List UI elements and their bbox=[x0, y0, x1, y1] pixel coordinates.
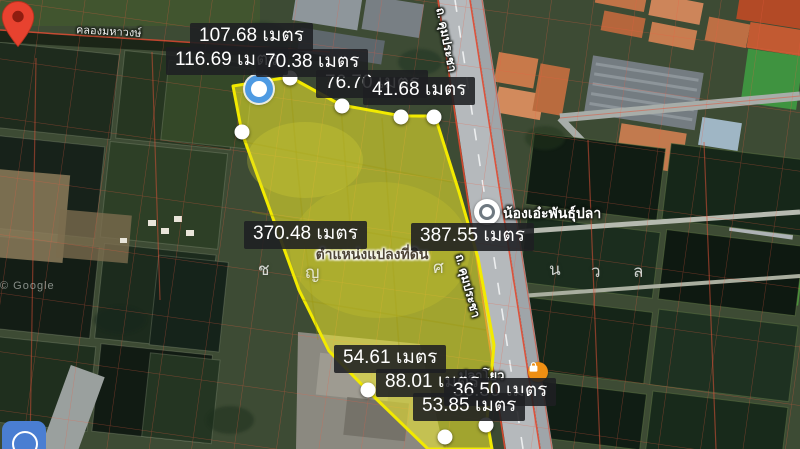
vertex-marker[interactable] bbox=[335, 99, 350, 114]
map-control-button[interactable] bbox=[2, 421, 46, 449]
area-letter: ช bbox=[258, 256, 270, 283]
vertex-marker[interactable] bbox=[438, 430, 453, 445]
vertex-marker[interactable] bbox=[427, 110, 442, 125]
shopping-bag-icon bbox=[528, 362, 539, 373]
area-letter: ล bbox=[633, 258, 643, 285]
vertex-marker[interactable] bbox=[361, 383, 376, 398]
measurement-label: 70.38 เมตร bbox=[256, 49, 368, 77]
map-canvas[interactable]: ช ญ ศ น ว ล คลองมหาวงษ์ ถ. คุมประชา ถ. ค… bbox=[0, 0, 800, 449]
location-pin[interactable] bbox=[0, 0, 36, 48]
measurement-label: 41.68 เมตร bbox=[363, 77, 475, 105]
measurement-label: 53.85 เมตร bbox=[413, 393, 525, 421]
google-watermark: © Google bbox=[0, 280, 55, 292]
area-letter: น bbox=[549, 256, 561, 283]
canal-label: คลองมหาวงษ์ bbox=[76, 20, 142, 41]
area-letter: ศ bbox=[433, 254, 444, 281]
vertex-marker[interactable] bbox=[394, 110, 409, 125]
area-letter: ว bbox=[591, 258, 601, 285]
vertex-marker-selected[interactable] bbox=[245, 75, 273, 103]
measurement-label: 370.48 เมตร bbox=[244, 221, 367, 249]
poi-fish-shop-label[interactable]: น้องเอ๋ะพันธุ์ปลา bbox=[503, 203, 601, 225]
measurement-label: 387.55 เมตร bbox=[411, 223, 534, 251]
poi-ring-icon bbox=[479, 204, 495, 220]
vertex-marker[interactable] bbox=[235, 125, 250, 140]
circle-icon bbox=[12, 431, 38, 449]
poi-fish-shop-icon[interactable] bbox=[474, 199, 500, 225]
